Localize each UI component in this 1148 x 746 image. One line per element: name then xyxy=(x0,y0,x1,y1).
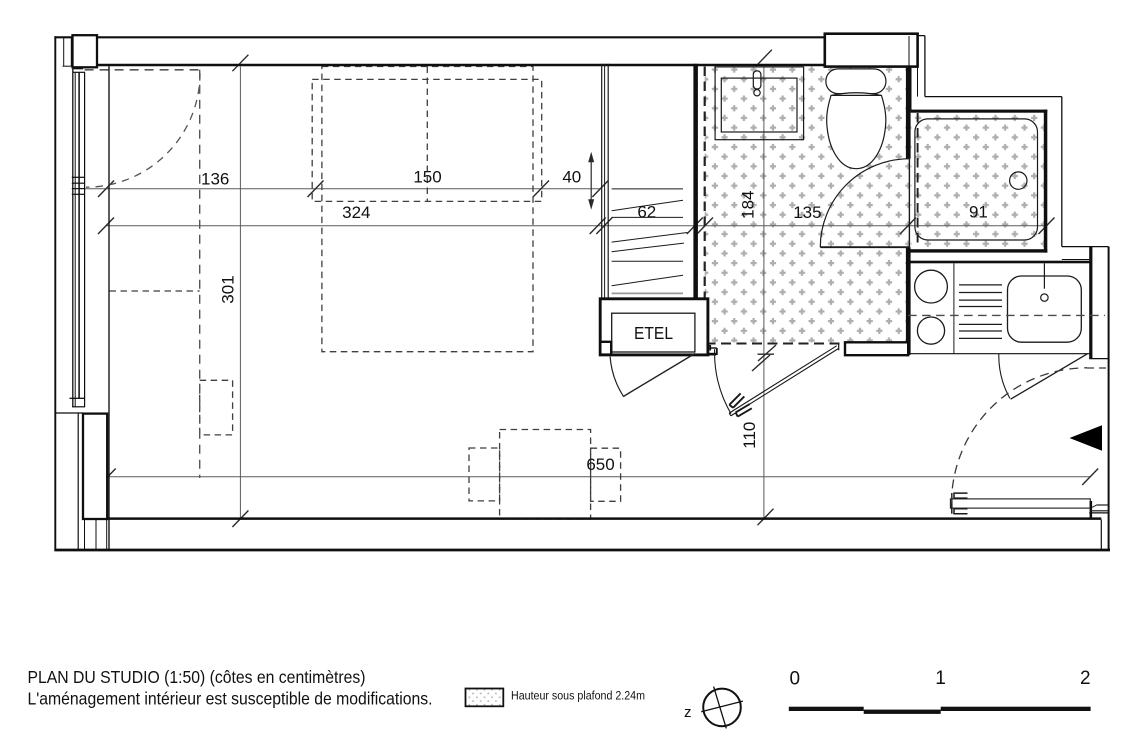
svg-text:40: 40 xyxy=(562,167,581,186)
svg-text:L'aménagement intérieur est su: L'aménagement intérieur est susceptible … xyxy=(28,689,433,709)
svg-text:Hauteur sous plafond 2.24m: Hauteur sous plafond 2.24m xyxy=(511,689,645,703)
svg-text:650: 650 xyxy=(586,455,614,474)
svg-text:91: 91 xyxy=(969,203,988,222)
svg-text:184: 184 xyxy=(739,191,758,219)
svg-text:1: 1 xyxy=(935,668,946,689)
svg-text:0: 0 xyxy=(790,669,801,690)
svg-text:2: 2 xyxy=(1080,668,1091,689)
svg-text:135: 135 xyxy=(793,203,821,222)
svg-text:324: 324 xyxy=(342,203,370,222)
svg-text:150: 150 xyxy=(413,167,441,186)
svg-text:PLAN DU STUDIO (1:50) (côtes e: PLAN DU STUDIO (1:50) (côtes en centimèt… xyxy=(28,667,366,687)
svg-text:301: 301 xyxy=(219,275,238,303)
svg-text:136: 136 xyxy=(201,169,229,188)
svg-text:z: z xyxy=(684,704,692,721)
svg-text:110: 110 xyxy=(740,422,759,449)
svg-text:62: 62 xyxy=(637,202,656,221)
svg-text:ETEL: ETEL xyxy=(634,323,673,343)
